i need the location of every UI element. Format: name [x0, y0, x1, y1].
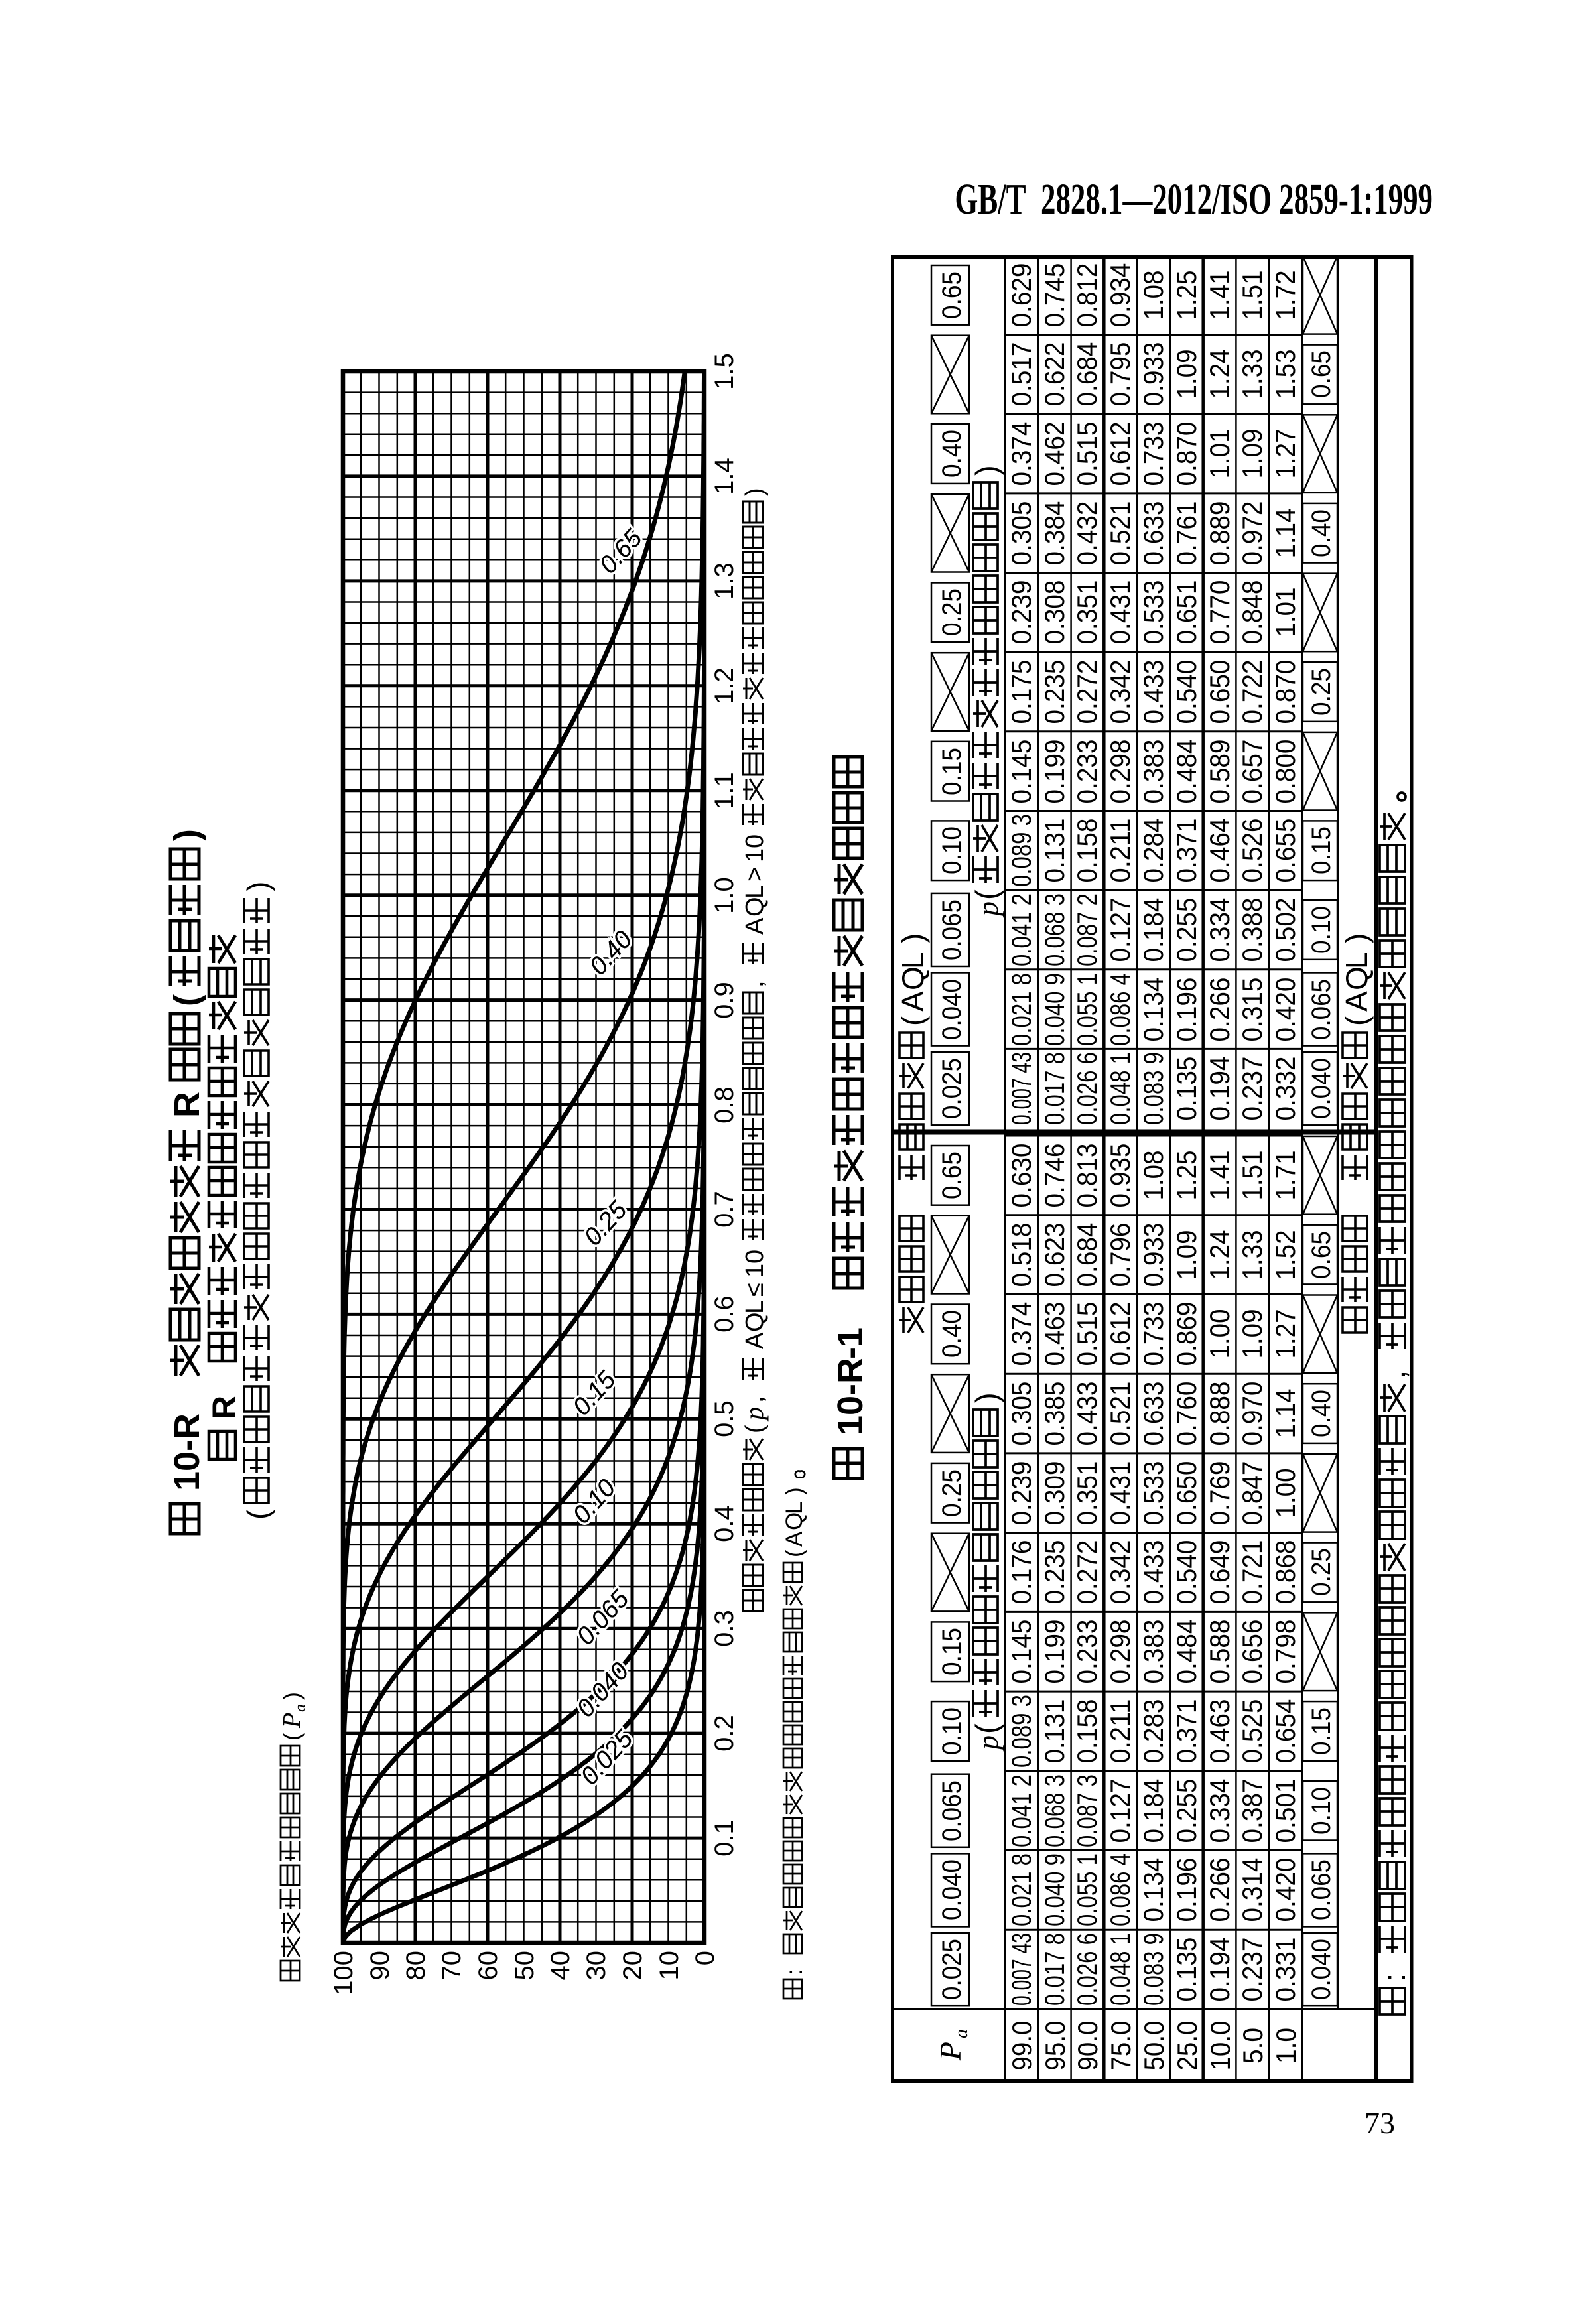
svg-text:1.27: 1.27 [1270, 429, 1301, 479]
svg-text:0.40: 0.40 [937, 1310, 966, 1358]
svg-text:0.342: 0.342 [1104, 660, 1136, 724]
svg-text:1: 1 [831, 1415, 870, 1435]
svg-text:0.798: 0.798 [1270, 1620, 1301, 1684]
svg-text:0.065: 0.065 [1307, 1859, 1336, 1920]
svg-text:0.086 4: 0.086 4 [1104, 973, 1136, 1046]
svg-text:1.09: 1.09 [1171, 350, 1202, 399]
svg-text:0.432: 0.432 [1071, 501, 1102, 566]
svg-text:1.09: 1.09 [1171, 1230, 1202, 1280]
svg-text:0.127: 0.127 [1104, 1779, 1136, 1843]
svg-text:0.10: 0.10 [937, 826, 966, 874]
svg-text:0.239: 0.239 [1006, 580, 1037, 645]
svg-text:0.868: 0.868 [1270, 1540, 1301, 1605]
svg-text:0.283: 0.283 [1138, 1699, 1169, 1764]
svg-text:0.211: 0.211 [1104, 819, 1136, 883]
svg-text:0.760: 0.760 [1171, 1382, 1202, 1446]
svg-text:0.612: 0.612 [1104, 1302, 1136, 1366]
svg-text:0.040 9: 0.040 9 [1039, 973, 1070, 1046]
svg-text:0.1: 0.1 [710, 1819, 739, 1857]
svg-text::: : [781, 1969, 807, 1975]
svg-text:0.021 8: 0.021 8 [1006, 1853, 1037, 1926]
svg-text:≤: ≤ [741, 1283, 769, 1297]
svg-text:0.194: 0.194 [1204, 1938, 1235, 2002]
svg-text:0.502: 0.502 [1270, 898, 1301, 962]
svg-text:1.5: 1.5 [710, 353, 739, 390]
svg-text:0.40: 0.40 [937, 430, 966, 478]
svg-text:0.374: 0.374 [1006, 1302, 1037, 1366]
svg-text:0.650: 0.650 [1171, 1461, 1202, 1526]
svg-text:0.083 9: 0.083 9 [1138, 1933, 1169, 2006]
svg-text:0.089 3: 0.089 3 [1006, 814, 1037, 887]
svg-text:0.65: 0.65 [937, 271, 966, 319]
svg-text:50: 50 [510, 1951, 539, 1981]
svg-text:(: ( [969, 1723, 1004, 1734]
svg-text:P: P [278, 1713, 306, 1729]
svg-text:0.017 8: 0.017 8 [1039, 1933, 1070, 2006]
svg-text:70: 70 [437, 1951, 466, 1981]
svg-text:0.196: 0.196 [1171, 1858, 1202, 1922]
svg-text:R: R [167, 1413, 207, 1439]
svg-text:1.53: 1.53 [1270, 350, 1301, 399]
svg-text:A: A [1339, 991, 1374, 1012]
svg-text::: : [1377, 1973, 1412, 1982]
svg-text:0.089 3: 0.089 3 [1006, 1695, 1037, 1768]
svg-text:1.14: 1.14 [1270, 1389, 1301, 1439]
svg-text:0.484: 0.484 [1171, 1620, 1202, 1684]
svg-text:0.431: 0.431 [1104, 580, 1136, 645]
svg-text:0.175: 0.175 [1006, 660, 1037, 724]
svg-text:1: 1 [831, 1327, 870, 1347]
svg-text:0.7: 0.7 [710, 1191, 739, 1228]
svg-text:0.040: 0.040 [937, 1859, 966, 1920]
svg-text:0.235: 0.235 [1039, 1540, 1070, 1605]
svg-text:0.589: 0.589 [1204, 740, 1235, 804]
svg-text:0.048 1: 0.048 1 [1104, 1933, 1136, 2006]
svg-text:1.71: 1.71 [1270, 1151, 1301, 1201]
svg-text:0.521: 0.521 [1104, 501, 1136, 566]
svg-text:1.51: 1.51 [1236, 1151, 1268, 1201]
svg-text:0.612: 0.612 [1104, 422, 1136, 486]
svg-text:R: R [206, 1396, 243, 1419]
svg-text:1.24: 1.24 [1204, 1230, 1235, 1280]
svg-text:0.055 1: 0.055 1 [1071, 1853, 1102, 1926]
svg-text:1.3: 1.3 [710, 562, 739, 600]
svg-text:0.933: 0.933 [1138, 1223, 1169, 1287]
svg-text:1.24: 1.24 [1204, 350, 1235, 399]
svg-text:0.521: 0.521 [1104, 1382, 1136, 1446]
svg-text:): ) [741, 488, 769, 496]
svg-text:1.01: 1.01 [1204, 429, 1235, 479]
svg-text:0.812: 0.812 [1071, 263, 1102, 328]
svg-text:-: - [831, 1384, 870, 1396]
svg-text:0.588: 0.588 [1204, 1620, 1235, 1684]
svg-text:(: ( [167, 994, 207, 1006]
svg-text:0.501: 0.501 [1270, 1779, 1301, 1843]
svg-text:0.305: 0.305 [1006, 1382, 1037, 1446]
svg-text:0.40: 0.40 [1307, 1390, 1336, 1437]
svg-text:0.654: 0.654 [1270, 1699, 1301, 1764]
svg-text:0.10: 0.10 [937, 1707, 966, 1755]
svg-text:0.533: 0.533 [1138, 580, 1169, 645]
svg-text:0.10: 0.10 [1307, 1787, 1336, 1835]
svg-text:p: p [739, 1407, 769, 1422]
svg-text:0.935: 0.935 [1104, 1144, 1136, 1208]
svg-text:1.01: 1.01 [1270, 588, 1301, 637]
svg-text:0.629: 0.629 [1006, 263, 1037, 328]
svg-text:0.158: 0.158 [1071, 1699, 1102, 1764]
svg-text:0.933: 0.933 [1138, 342, 1169, 407]
svg-text:A: A [741, 917, 769, 935]
svg-text:0.199: 0.199 [1039, 740, 1070, 804]
svg-text:0.387: 0.387 [1236, 1779, 1268, 1843]
svg-text:0.25: 0.25 [937, 1469, 966, 1517]
svg-text:1.00: 1.00 [1270, 1469, 1301, 1518]
svg-text:0.025: 0.025 [937, 1939, 966, 2000]
svg-text:0.305: 0.305 [1006, 501, 1037, 566]
svg-text:0.131: 0.131 [1039, 819, 1070, 883]
svg-text:): ) [241, 882, 275, 891]
svg-text:0.131: 0.131 [1039, 1699, 1070, 1764]
svg-text:0.761: 0.761 [1171, 501, 1202, 566]
svg-text:0.9: 0.9 [710, 982, 739, 1019]
svg-text:0.721: 0.721 [1236, 1540, 1268, 1605]
svg-text:p: p [972, 901, 1004, 918]
svg-text:L: L [781, 1502, 807, 1514]
svg-text:0.184: 0.184 [1138, 898, 1169, 962]
svg-text:0.462: 0.462 [1039, 422, 1070, 486]
svg-text:1.00: 1.00 [1204, 1309, 1235, 1359]
svg-text:0.135: 0.135 [1171, 1057, 1202, 1121]
svg-text:0.196: 0.196 [1171, 978, 1202, 1042]
svg-text:0.800: 0.800 [1270, 740, 1301, 804]
svg-text:50.0: 50.0 [1138, 2021, 1169, 2071]
svg-text:0.026 6: 0.026 6 [1071, 1052, 1102, 1125]
svg-text:0.622: 0.622 [1039, 342, 1070, 407]
svg-text:0.15: 0.15 [1307, 826, 1336, 874]
svg-text:0.026 6: 0.026 6 [1071, 1933, 1102, 2006]
svg-text:1.08: 1.08 [1138, 1151, 1169, 1201]
svg-text:0.733: 0.733 [1138, 422, 1169, 486]
svg-text:0.746: 0.746 [1039, 1144, 1070, 1208]
svg-text:0.25: 0.25 [1307, 1548, 1336, 1596]
svg-text:): ) [969, 1392, 1004, 1403]
svg-text:,: , [1377, 1370, 1412, 1379]
svg-text:0.068 3: 0.068 3 [1039, 1774, 1070, 1847]
svg-text:a: a [292, 1704, 309, 1712]
svg-text:0.309: 0.309 [1039, 1461, 1070, 1526]
svg-text:5.0: 5.0 [1237, 2028, 1268, 2064]
svg-text:0.15: 0.15 [1307, 1707, 1336, 1755]
svg-text:0.934: 0.934 [1104, 263, 1136, 328]
svg-text:0.383: 0.383 [1138, 740, 1169, 804]
svg-text:1.25: 1.25 [1171, 1151, 1202, 1201]
svg-text:0.540: 0.540 [1171, 1540, 1202, 1605]
svg-text:0.526: 0.526 [1236, 819, 1268, 883]
svg-text:0.40: 0.40 [584, 925, 638, 980]
svg-text:99.0: 99.0 [1006, 2021, 1037, 2071]
svg-text:0.284: 0.284 [1138, 819, 1169, 883]
svg-text:,: , [741, 980, 769, 988]
svg-text:0.298: 0.298 [1104, 1620, 1136, 1684]
svg-text:0.540: 0.540 [1171, 660, 1202, 724]
svg-text:R: R [167, 1092, 207, 1118]
svg-text:0.649: 0.649 [1204, 1540, 1235, 1605]
svg-text:0.272: 0.272 [1071, 1540, 1102, 1605]
svg-text:0.385: 0.385 [1039, 1382, 1070, 1446]
svg-text:R: R [831, 1358, 870, 1384]
svg-text:1: 1 [741, 1264, 769, 1278]
svg-text:L: L [896, 952, 930, 969]
svg-text:0.314: 0.314 [1236, 1858, 1268, 1922]
svg-text:0.484: 0.484 [1171, 740, 1202, 804]
svg-text:100: 100 [329, 1951, 358, 1995]
svg-text:1.09: 1.09 [1236, 1309, 1268, 1359]
svg-text:0.334: 0.334 [1204, 1779, 1235, 1843]
svg-text:0.463: 0.463 [1039, 1302, 1070, 1366]
svg-text:0.211: 0.211 [1104, 1699, 1136, 1764]
svg-text:0.233: 0.233 [1071, 740, 1102, 804]
svg-text:1.1: 1.1 [710, 772, 739, 809]
svg-text:0.388: 0.388 [1236, 898, 1268, 962]
svg-text:0.795: 0.795 [1104, 342, 1136, 407]
svg-text:1.25: 1.25 [1171, 271, 1202, 320]
svg-text:0.970: 0.970 [1236, 1382, 1268, 1446]
svg-text:0.870: 0.870 [1270, 660, 1301, 724]
svg-text:0.463: 0.463 [1204, 1699, 1235, 1764]
svg-text:1.33: 1.33 [1236, 1230, 1268, 1280]
svg-text:0.308: 0.308 [1039, 580, 1070, 645]
svg-text:0.3: 0.3 [710, 1610, 739, 1647]
svg-text:Q: Q [896, 966, 930, 990]
svg-text:0.255: 0.255 [1171, 1779, 1202, 1843]
svg-text:0.6: 0.6 [710, 1295, 739, 1333]
svg-text:0.332: 0.332 [1270, 1057, 1301, 1121]
svg-text:0.342: 0.342 [1104, 1540, 1136, 1605]
svg-text:0.040: 0.040 [1307, 1939, 1336, 2000]
svg-text:0.65: 0.65 [937, 1151, 966, 1199]
svg-text:40: 40 [546, 1951, 575, 1981]
svg-text:0.068 3: 0.068 3 [1039, 893, 1070, 966]
svg-text:0.420: 0.420 [1270, 978, 1301, 1042]
svg-text:0.431: 0.431 [1104, 1461, 1136, 1526]
svg-text:0.040 9: 0.040 9 [1039, 1853, 1070, 1926]
svg-text:0.134: 0.134 [1138, 978, 1169, 1042]
svg-text:a: a [951, 2029, 972, 2038]
svg-text:0.25: 0.25 [1307, 668, 1336, 716]
svg-text:0.769: 0.769 [1204, 1461, 1235, 1526]
svg-text:0.184: 0.184 [1138, 1779, 1169, 1843]
svg-text:(: ( [896, 1016, 930, 1026]
svg-text:0.655: 0.655 [1270, 819, 1301, 883]
svg-text:0.65: 0.65 [1307, 1231, 1336, 1279]
svg-text:0.145: 0.145 [1006, 1620, 1037, 1684]
svg-text:(: ( [969, 889, 1004, 900]
svg-text:0.433: 0.433 [1138, 660, 1169, 724]
svg-text:0.040: 0.040 [1307, 1058, 1336, 1119]
svg-text:0.888: 0.888 [1204, 1382, 1235, 1446]
svg-text:): ) [278, 1692, 305, 1700]
svg-text:p: p [972, 1735, 1004, 1752]
svg-text:90.0: 90.0 [1072, 2021, 1103, 2071]
svg-text:0: 0 [831, 1396, 870, 1415]
svg-text:0.087 3: 0.087 3 [1071, 1774, 1102, 1847]
svg-text:0.518: 0.518 [1006, 1223, 1037, 1287]
svg-text:0.15: 0.15 [937, 1628, 966, 1675]
svg-text:(: ( [741, 1425, 769, 1433]
svg-text:0.065: 0.065 [937, 1780, 966, 1841]
svg-text:1: 1 [167, 1471, 207, 1491]
svg-text:Q: Q [1339, 966, 1374, 990]
svg-text:80: 80 [401, 1951, 431, 1981]
svg-text:0.383: 0.383 [1138, 1620, 1169, 1684]
svg-text:0.633: 0.633 [1138, 501, 1169, 566]
svg-text:L: L [741, 885, 769, 899]
svg-text:-: - [167, 1439, 207, 1451]
svg-text:A: A [896, 991, 930, 1012]
svg-text:0.25: 0.25 [937, 588, 966, 636]
svg-text:1: 1 [741, 848, 769, 862]
svg-text:0.420: 0.420 [1270, 1858, 1301, 1922]
svg-text:0.176: 0.176 [1006, 1540, 1037, 1605]
svg-text:1.41: 1.41 [1204, 271, 1235, 320]
svg-text:1.09: 1.09 [1236, 429, 1268, 479]
svg-text:0.813: 0.813 [1071, 1144, 1102, 1208]
svg-text:0.048 1: 0.048 1 [1104, 1052, 1136, 1125]
svg-text:0.134: 0.134 [1138, 1858, 1169, 1922]
svg-text:0.889: 0.889 [1204, 501, 1235, 566]
svg-text:0.684: 0.684 [1071, 1223, 1102, 1287]
svg-text:0.194: 0.194 [1204, 1057, 1235, 1121]
svg-text:1.52: 1.52 [1270, 1230, 1301, 1280]
svg-text:): ) [969, 465, 1004, 476]
svg-text:0.2: 0.2 [710, 1715, 739, 1752]
svg-text:0.266: 0.266 [1204, 1858, 1235, 1922]
svg-text:0.298: 0.298 [1104, 740, 1136, 804]
svg-text:0.371: 0.371 [1171, 819, 1202, 883]
svg-text:0.8: 0.8 [710, 1086, 739, 1124]
svg-text:0.796: 0.796 [1104, 1223, 1136, 1287]
svg-text:0.869: 0.869 [1171, 1302, 1202, 1366]
svg-text:0.351: 0.351 [1071, 580, 1102, 645]
svg-text:-: - [831, 1347, 870, 1359]
svg-text:0: 0 [741, 834, 769, 848]
svg-text:,: , [741, 1396, 769, 1403]
svg-text:0.657: 0.657 [1236, 740, 1268, 804]
svg-text:1.4: 1.4 [710, 458, 739, 495]
svg-text:25.0: 25.0 [1171, 2021, 1203, 2071]
svg-text:0.371: 0.371 [1171, 1699, 1202, 1764]
svg-text:1.41: 1.41 [1204, 1151, 1235, 1201]
svg-text:A: A [781, 1531, 807, 1547]
svg-text:0.065: 0.065 [937, 899, 966, 960]
svg-text:0.650: 0.650 [1204, 660, 1235, 724]
svg-text:0.235: 0.235 [1039, 660, 1070, 724]
svg-text:0.515: 0.515 [1071, 1302, 1102, 1366]
svg-text:0.087 2: 0.087 2 [1071, 893, 1102, 966]
svg-text:0.007 43: 0.007 43 [1006, 1933, 1037, 2006]
svg-text:0.237: 0.237 [1236, 1057, 1268, 1121]
svg-text:0.525: 0.525 [1236, 1699, 1268, 1764]
svg-text:0.651: 0.651 [1171, 580, 1202, 645]
svg-text:P: P [933, 2042, 967, 2061]
svg-text:0: 0 [167, 1451, 207, 1471]
svg-text:0.464: 0.464 [1204, 819, 1235, 883]
svg-text:A: A [741, 1332, 769, 1349]
svg-text:0.334: 0.334 [1204, 898, 1235, 962]
svg-text:0.684: 0.684 [1071, 342, 1102, 407]
svg-text:1.14: 1.14 [1270, 509, 1301, 558]
svg-text:1.33: 1.33 [1236, 350, 1268, 399]
svg-text:0.255: 0.255 [1171, 898, 1202, 962]
svg-text:0.158: 0.158 [1071, 819, 1102, 883]
svg-text:(: ( [781, 1549, 807, 1557]
svg-text:0.848: 0.848 [1236, 580, 1268, 645]
svg-text:60: 60 [474, 1951, 503, 1981]
svg-text:): ) [1339, 933, 1374, 943]
svg-text:0.40: 0.40 [1307, 509, 1336, 557]
svg-text:0.630: 0.630 [1006, 1144, 1037, 1208]
svg-text:95.0: 95.0 [1039, 2021, 1071, 2071]
svg-text:): ) [896, 933, 930, 943]
svg-text:0.025: 0.025 [937, 1058, 966, 1119]
svg-text:0.233: 0.233 [1071, 1620, 1102, 1684]
svg-text:(: ( [278, 1733, 305, 1741]
svg-text:0.5: 0.5 [710, 1400, 739, 1437]
svg-text:0.533: 0.533 [1138, 1461, 1169, 1526]
svg-text:0.515: 0.515 [1071, 422, 1102, 486]
svg-text:0.847: 0.847 [1236, 1461, 1268, 1526]
svg-text:(: ( [241, 1509, 275, 1520]
svg-text:L: L [741, 1300, 769, 1314]
svg-text:10: 10 [655, 1951, 684, 1981]
svg-text:0.10: 0.10 [1307, 906, 1336, 954]
svg-text:0.433: 0.433 [1071, 1382, 1102, 1446]
svg-text:Q: Q [741, 1312, 769, 1332]
svg-text:0.145: 0.145 [1006, 740, 1037, 804]
svg-text:0.055 1: 0.055 1 [1071, 973, 1102, 1046]
svg-text:0: 0 [691, 1951, 720, 1965]
svg-text:0.65: 0.65 [1307, 350, 1336, 398]
svg-text:0.331: 0.331 [1270, 1938, 1301, 2002]
svg-text:0.745: 0.745 [1039, 263, 1070, 328]
svg-text:0.040: 0.040 [937, 979, 966, 1040]
svg-text:1.72: 1.72 [1270, 271, 1301, 320]
svg-text:0.384: 0.384 [1039, 501, 1070, 566]
svg-text:0.266: 0.266 [1204, 978, 1235, 1042]
svg-text:0.770: 0.770 [1204, 580, 1235, 645]
svg-text:>: > [741, 867, 769, 882]
svg-text:0.135: 0.135 [1171, 1938, 1202, 2002]
svg-text:10.0: 10.0 [1205, 2021, 1236, 2071]
svg-text:0.127: 0.127 [1104, 898, 1136, 962]
svg-text:(: ( [1339, 1016, 1374, 1026]
svg-text:0.041 2: 0.041 2 [1006, 1774, 1037, 1847]
svg-text:0.633: 0.633 [1138, 1382, 1169, 1446]
svg-text:Q: Q [781, 1512, 807, 1530]
svg-text:0.041 2: 0.041 2 [1006, 893, 1037, 966]
svg-text:1.0: 1.0 [710, 877, 739, 914]
svg-text:): ) [781, 1487, 807, 1495]
svg-text:90: 90 [366, 1951, 395, 1981]
svg-text:1.2: 1.2 [710, 667, 739, 704]
svg-text:0.017 8: 0.017 8 [1039, 1052, 1070, 1125]
svg-text:0.239: 0.239 [1006, 1461, 1037, 1526]
svg-text:0.433: 0.433 [1138, 1540, 1169, 1605]
svg-text:0.021 8: 0.021 8 [1006, 973, 1037, 1046]
svg-text:0.517: 0.517 [1006, 342, 1037, 407]
svg-text:0.272: 0.272 [1071, 660, 1102, 724]
svg-text:0.315: 0.315 [1236, 978, 1268, 1042]
